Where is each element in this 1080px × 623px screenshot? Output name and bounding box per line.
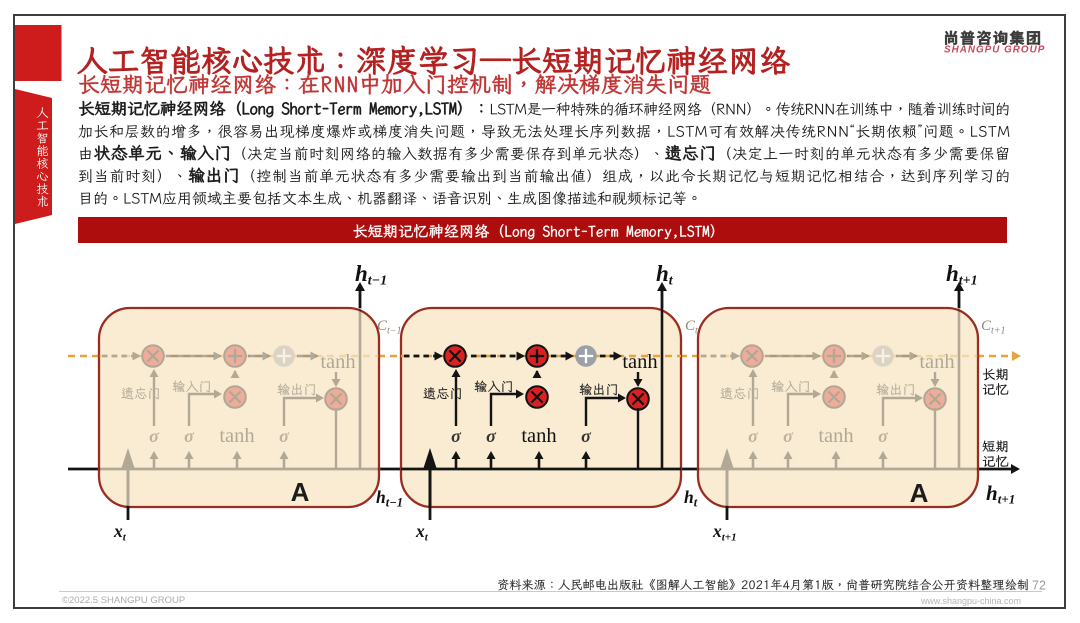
svg-text:72: 72 [1032, 579, 1046, 593]
svg-text:www.shangpu-china.com: www.shangpu-china.com [920, 596, 1021, 606]
svg-text:SHANGPU GROUP: SHANGPU GROUP [944, 44, 1045, 55]
svg-text:A: A [910, 478, 929, 508]
svg-text:A: A [291, 477, 310, 507]
svg-text:©2022.5 SHANGPU GROUP: ©2022.5 SHANGPU GROUP [62, 595, 185, 606]
